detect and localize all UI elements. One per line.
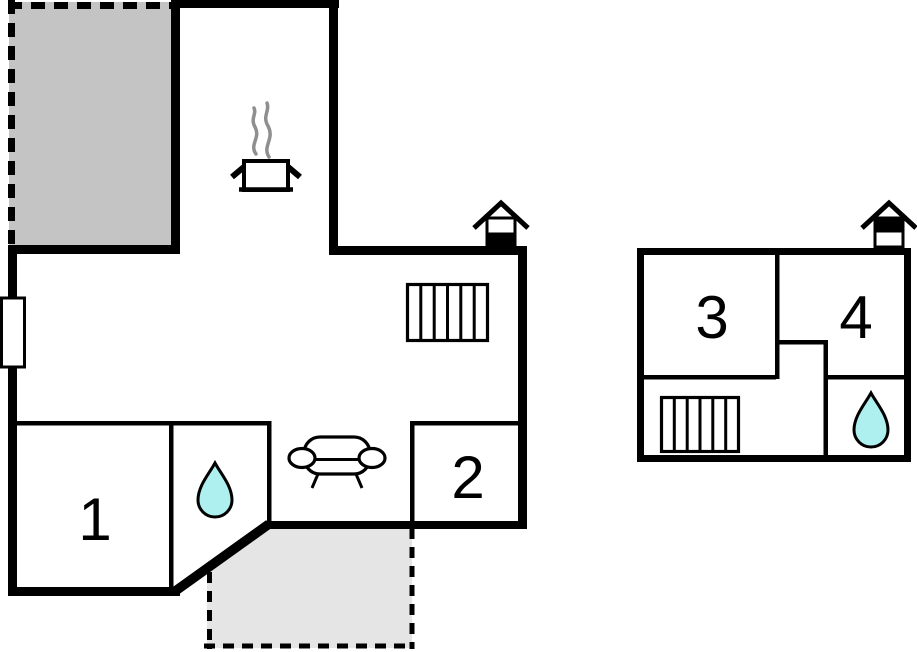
wall-kitchen-top bbox=[171, 0, 339, 8]
wall-room2-top bbox=[410, 421, 522, 426]
wall-living-bottom bbox=[265, 521, 527, 529]
entrance-house-icon bbox=[862, 203, 916, 247]
room-3-label: 3 bbox=[695, 284, 728, 351]
cooking-pot-icon bbox=[232, 103, 300, 190]
wall-room3-bottom bbox=[642, 375, 776, 380]
stairs-icon bbox=[408, 285, 488, 341]
sofa-icon bbox=[289, 437, 385, 488]
wall-room2-left bbox=[410, 421, 415, 525]
wall-terrace-bottom bbox=[8, 245, 180, 254]
wall-step-vertical bbox=[824, 340, 829, 458]
steam-icon bbox=[266, 103, 270, 157]
stairs-icon bbox=[662, 398, 739, 452]
wall-kitchen-left bbox=[171, 0, 180, 253]
water-drop-icon bbox=[198, 463, 232, 517]
wall-left bbox=[637, 248, 644, 462]
wall-kitchen-right bbox=[329, 0, 338, 253]
room-1-label: 1 bbox=[78, 486, 111, 553]
wall-top bbox=[637, 248, 911, 255]
room-4-label: 4 bbox=[839, 284, 872, 351]
pot-body bbox=[244, 161, 288, 190]
wall-right bbox=[904, 248, 911, 462]
wall-step-horizontal bbox=[775, 340, 828, 345]
wall-bath-right bbox=[267, 421, 272, 526]
wall-room1-bath-divider bbox=[169, 421, 174, 591]
left-plan: 1 2 bbox=[2, 0, 529, 649]
wall-bottom bbox=[637, 455, 911, 462]
right-plan: 3 4 bbox=[637, 203, 916, 462]
room-2-label: 2 bbox=[451, 444, 484, 511]
upper-terrace-area bbox=[9, 2, 174, 248]
wall-right-outer bbox=[518, 246, 527, 529]
wall-room1-bottom bbox=[8, 587, 180, 596]
water-drop-icon bbox=[854, 393, 888, 447]
window-icon bbox=[2, 298, 25, 367]
wall-rooms-top bbox=[13, 421, 271, 426]
wall-room3-room4-divider bbox=[775, 252, 780, 379]
entrance-house-icon bbox=[474, 203, 528, 247]
steam-icon bbox=[253, 108, 257, 154]
floorplan-canvas: 1 2 bbox=[0, 0, 917, 652]
wall-bath-top bbox=[824, 375, 909, 380]
